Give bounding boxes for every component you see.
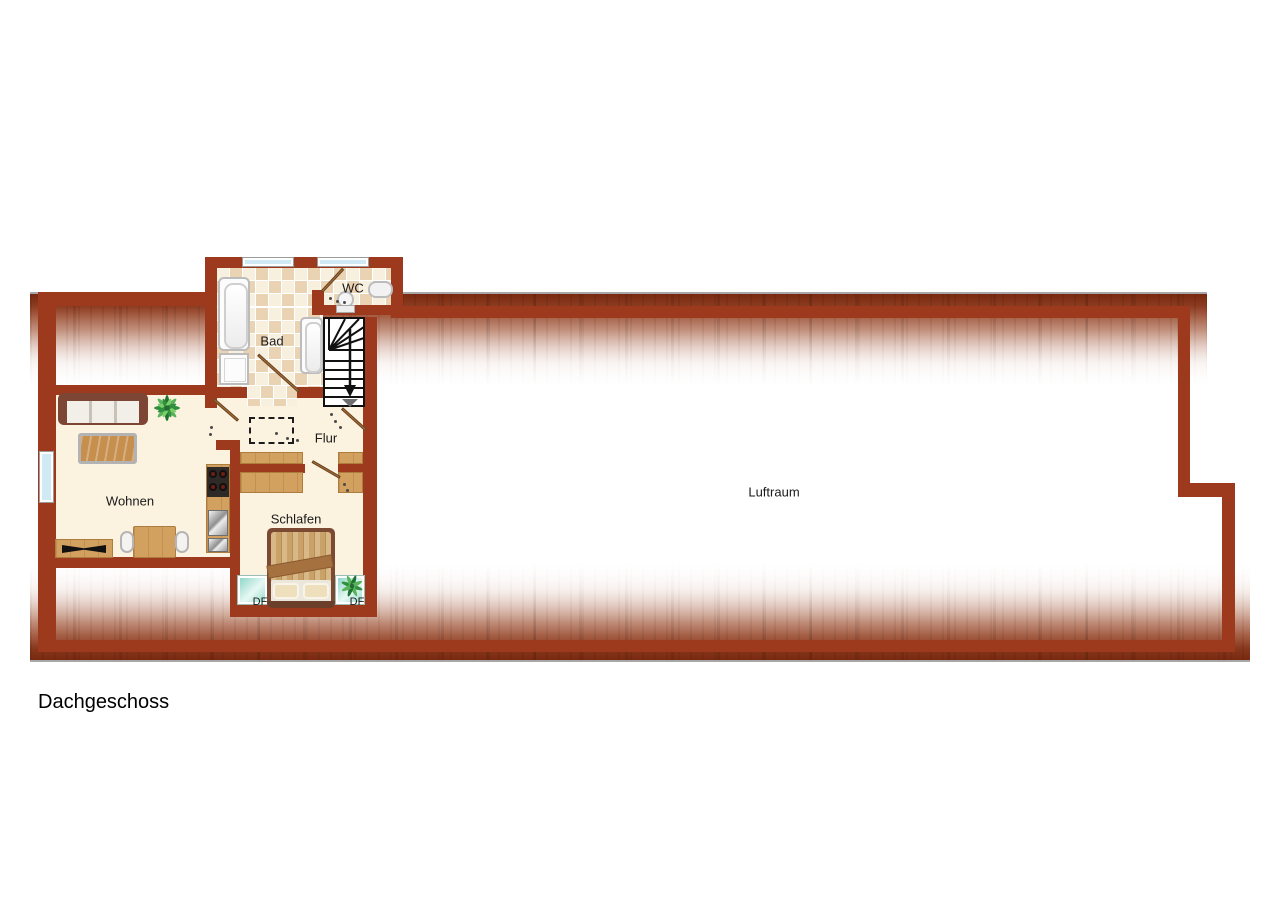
plant-living	[153, 394, 181, 422]
room-label-bedroom: Schlafen	[271, 512, 322, 527]
living-window-left	[39, 451, 54, 503]
tv-sideboard	[55, 539, 113, 558]
wall-top-left	[38, 292, 217, 306]
floorplan-canvas: Wohnen Schlafen Flur Bad WC Luftraum DF …	[0, 0, 1280, 905]
kitchen-sink-drainer	[208, 538, 228, 552]
room-label-hall: Flur	[315, 431, 337, 446]
skylight-label-right: DF	[350, 596, 365, 608]
wall-bath-block-top	[205, 257, 403, 268]
door-swing-dot	[275, 432, 278, 435]
door-swing-dot	[334, 420, 337, 423]
bath-door-threshold	[247, 385, 297, 406]
room-label-void: Luftraum	[748, 485, 799, 500]
door-swing-dot	[296, 439, 299, 442]
bath-cabinet-inner	[224, 358, 246, 382]
door-swing-dot	[330, 413, 333, 416]
bath-window-1	[242, 257, 294, 267]
wc-sink	[368, 281, 393, 298]
window-pane	[245, 260, 291, 264]
wall-wc-bottom	[324, 305, 391, 315]
door-swing-dot	[346, 489, 349, 492]
bathtub-basin	[224, 283, 248, 349]
wall-hall-stub	[216, 440, 240, 450]
wc-toilet-tank	[336, 305, 355, 313]
door-swing-dot	[339, 426, 342, 429]
room-label-living: Wohnen	[106, 494, 154, 509]
sofa-cushions	[67, 401, 139, 423]
wall-bath-block-left	[205, 257, 217, 408]
bathtub	[218, 277, 250, 351]
kitchen-counter	[206, 464, 230, 553]
bath-window-2	[317, 257, 369, 267]
sofa-cushion	[67, 401, 89, 423]
door-swing-dot	[343, 483, 346, 486]
wardrobe-bedroom-right	[338, 472, 363, 493]
skylight-label-left: DF	[253, 596, 268, 608]
wardrobe-hall-left	[240, 452, 303, 464]
burner	[219, 470, 227, 478]
bed-pillow-right	[303, 583, 329, 599]
door-swing-dot	[343, 301, 346, 304]
bed-pillow-left	[273, 583, 299, 599]
wall-bath-bottom-mid	[297, 387, 323, 398]
door-swing-dot	[336, 300, 339, 303]
stairs	[323, 317, 365, 407]
floor-title: Dachgeschoss	[38, 691, 169, 714]
door-swing-dot	[209, 433, 212, 436]
wall-void-right-lower	[1222, 483, 1235, 652]
shower-tub	[300, 317, 323, 374]
dining-chair-left	[120, 531, 134, 553]
wardrobe-bedroom-left	[240, 472, 303, 493]
shower-tub-basin	[305, 322, 322, 373]
stove	[207, 467, 229, 497]
window-pane	[320, 260, 366, 264]
sofa-cushion	[92, 401, 114, 423]
bed-footboard	[267, 601, 335, 608]
sofa	[58, 393, 148, 425]
tv-icon	[62, 544, 106, 554]
stairs-drawing	[323, 317, 365, 407]
wardrobe-hall-right	[338, 452, 363, 464]
bath-cabinet	[219, 353, 249, 385]
kitchen-sink	[208, 510, 228, 536]
dining-chair-right	[175, 531, 189, 553]
wall-void-right-upper	[1178, 306, 1190, 497]
sofa-cushion	[117, 401, 139, 423]
wall-outer-bottom	[38, 640, 1235, 652]
wall-bath-bottom-left	[205, 387, 247, 398]
wall-wc-stub	[312, 290, 324, 315]
door-swing-dot	[210, 426, 213, 429]
dining-table	[133, 526, 176, 558]
room-label-bath: Bad	[260, 334, 283, 349]
door-swing-dot	[329, 297, 332, 300]
double-bed	[267, 528, 335, 608]
burner	[209, 470, 217, 478]
wall-void-top	[395, 306, 1190, 318]
window-pane	[42, 454, 51, 500]
wall-apartment-right	[363, 317, 377, 617]
burner	[219, 483, 227, 491]
room-label-wc: WC	[342, 281, 364, 296]
coffee-table	[78, 433, 137, 464]
wall-living-bottom	[48, 557, 240, 568]
burner	[209, 483, 217, 491]
door-swing-dot	[286, 437, 289, 440]
